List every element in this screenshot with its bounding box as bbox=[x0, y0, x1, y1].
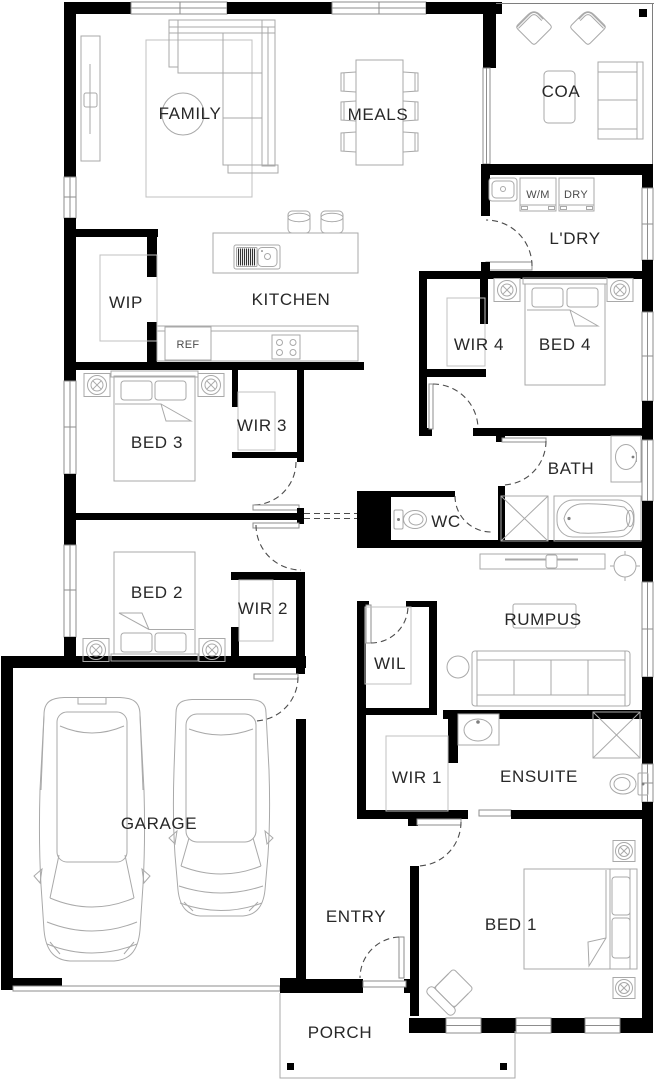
svg-text:BED 1: BED 1 bbox=[485, 915, 537, 934]
svg-text:BATH: BATH bbox=[548, 459, 594, 478]
svg-text:ENSUITE: ENSUITE bbox=[500, 767, 578, 786]
svg-text:WC: WC bbox=[431, 512, 461, 531]
svg-text:DRY: DRY bbox=[564, 189, 588, 201]
svg-text:WIR 2: WIR 2 bbox=[238, 599, 288, 618]
svg-text:PORCH: PORCH bbox=[308, 1023, 372, 1042]
svg-text:REF: REF bbox=[177, 339, 200, 351]
svg-text:BED 4: BED 4 bbox=[539, 335, 591, 354]
svg-text:WIR 3: WIR 3 bbox=[237, 416, 287, 435]
svg-text:RUMPUS: RUMPUS bbox=[504, 610, 581, 629]
svg-text:KITCHEN: KITCHEN bbox=[252, 290, 331, 309]
svg-text:FAMILY: FAMILY bbox=[159, 104, 222, 123]
svg-text:W/M: W/M bbox=[526, 189, 550, 201]
svg-text:COA: COA bbox=[542, 82, 581, 101]
svg-text:WIR 4: WIR 4 bbox=[454, 335, 504, 354]
svg-text:WIR 1: WIR 1 bbox=[392, 768, 442, 787]
svg-text:BED 3: BED 3 bbox=[131, 433, 183, 452]
svg-text:ENTRY: ENTRY bbox=[326, 907, 386, 926]
svg-text:GARAGE: GARAGE bbox=[121, 814, 197, 833]
svg-text:L'DRY: L'DRY bbox=[549, 229, 600, 248]
svg-text:BED 2: BED 2 bbox=[131, 583, 183, 602]
svg-text:WIP: WIP bbox=[109, 293, 143, 312]
svg-text:WIL: WIL bbox=[374, 654, 406, 673]
svg-text:MEALS: MEALS bbox=[348, 105, 409, 124]
